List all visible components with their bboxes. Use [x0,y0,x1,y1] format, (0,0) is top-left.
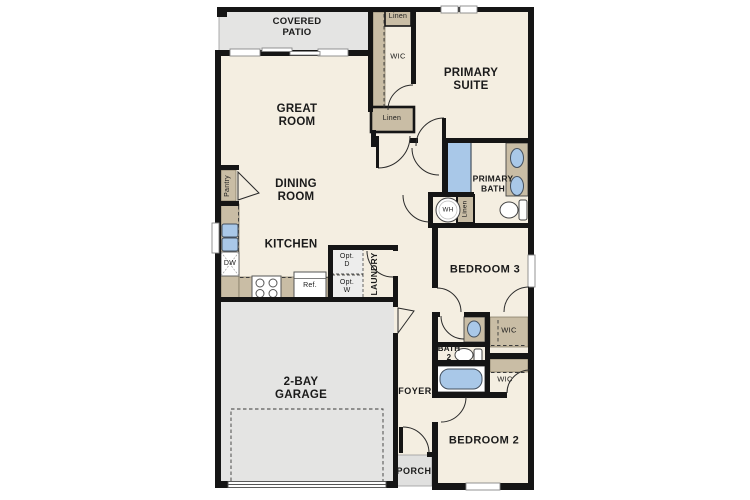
wall-top [225,7,534,12]
slider-door-2 [290,52,320,56]
wall-wh-top [428,192,474,197]
wall-bed2-top-a [432,392,507,398]
window-bedroom3 [528,255,535,287]
label-bath-2: BATH 2 [438,344,461,362]
primary-toilet [500,200,527,220]
window-suite-2 [460,6,477,13]
label-primary-bath: PRIMARY BATH [473,174,514,193]
label-wic-primary: WIC [390,53,405,62]
kitchen-sink-basin-2 [222,238,238,251]
garage-door [228,482,386,488]
shower [447,141,471,194]
wall-kitchen-garage [215,297,398,302]
wall-linen-stub [371,130,376,147]
label-wic-bedroom3: WIC [501,327,516,336]
label-refrigerator: Ref. [303,282,317,290]
window-bedroom2 [466,483,500,490]
wic-bedroom2-shelf [490,359,528,372]
label-dishwasher: DW [224,260,236,268]
label-bedroom-3: BEDROOM 3 [450,264,520,277]
floor-plan-page: COVERED PATIO GREAT ROOM PRIMARY SUITE D… [0,0,750,500]
wall-pantry-top [221,165,239,170]
wall-foyer-left-a [393,245,398,251]
window-patio-2 [318,49,348,56]
label-foyer: FOYER [398,386,432,396]
label-garage: 2-BAY GARAGE [275,376,327,402]
bath2-sink [468,321,481,337]
label-primary-suite: PRIMARY SUITE [444,67,498,93]
label-water-heater: WH [443,206,454,213]
label-optional-dryer: Opt. D [340,253,354,269]
wall-shower-left [442,138,448,195]
wall-pantry-bottom [221,201,239,206]
label-covered-patio: COVERED PATIO [273,17,322,39]
label-wic-bedroom2: WIC [497,376,512,385]
vanity-sink-1 [511,149,524,168]
wall-right [528,7,534,490]
label-great-room: GREAT ROOM [277,103,318,129]
label-optional-washer: Opt. W [340,279,354,295]
label-bedroom-2: BEDROOM 2 [449,435,519,448]
label-linen-hall: Linen [383,115,401,123]
window-patio-1 [230,49,260,56]
wall-left [215,50,221,488]
window-kitchen [212,223,219,253]
wall-wic-left [368,7,373,112]
wall-wic2-top [485,353,534,359]
wall-bath-bed3 [428,223,534,228]
wall-bed3-left [432,223,438,288]
label-linen-wh: Linen [461,201,468,218]
wall-wh-left [428,192,433,225]
wall-patio-corner [217,7,227,17]
wall-wic-right [411,7,416,84]
wic-primary-shelf [373,12,385,112]
slider-door-1 [262,48,292,52]
wall-foyer-left-b [393,276,398,307]
label-dining-room: DINING ROOM [275,178,317,204]
wall-suite-bath [444,138,534,143]
floor-plan-drawing [0,0,750,500]
label-kitchen: KITCHEN [265,238,318,251]
wall-laundry-top [330,245,393,250]
bathtub [437,366,485,392]
label-pantry: Pantry [224,175,232,197]
wall-laundry-left [328,245,333,302]
stove [252,276,281,299]
kitchen-sink-basin-1 [222,224,238,237]
window-suite-1 [441,6,458,13]
label-laundry: LAUNDRY [370,253,380,296]
label-porch: PORCH [396,466,431,476]
label-linen-top: Linen [389,13,407,21]
